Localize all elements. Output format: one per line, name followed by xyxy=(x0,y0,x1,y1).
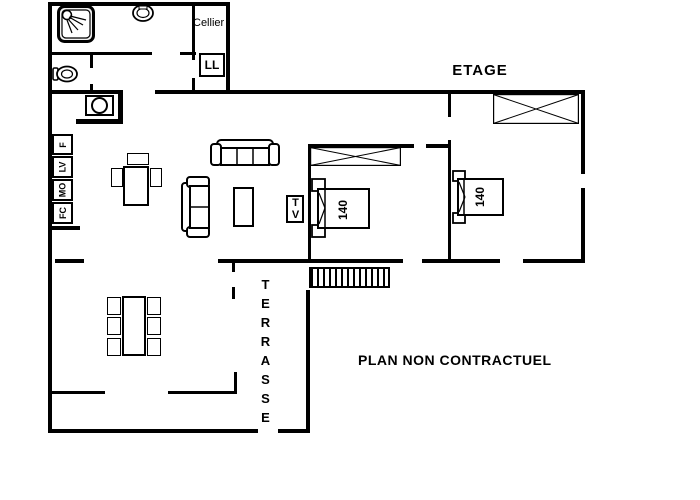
terrace-chair-right-2 xyxy=(147,317,161,335)
wall-terrace-door-b xyxy=(232,287,235,299)
wall-cellier-right xyxy=(226,2,230,92)
terrace-chair-left-3 xyxy=(107,338,121,356)
fridge-box: F xyxy=(52,134,73,155)
wall-right-outer-b xyxy=(581,188,585,263)
sofa-icon xyxy=(210,139,280,167)
tv-box: TV xyxy=(286,195,304,223)
room-label-terrasse: TERRASSE xyxy=(258,277,273,429)
wall-terrace-inner-b xyxy=(168,391,237,394)
wall-terrace-tick-vertical xyxy=(234,372,237,394)
hob-icon xyxy=(85,95,114,116)
stairs-icon xyxy=(309,267,390,288)
oven-label: FC xyxy=(58,207,68,219)
wall-main-top-a xyxy=(48,90,123,94)
wall-terrace-right xyxy=(306,290,310,432)
wall-wc-right-a xyxy=(90,52,93,68)
bed1-size-label: 140 xyxy=(323,190,363,230)
dining-table xyxy=(123,166,149,206)
hob-burner xyxy=(91,97,108,114)
washing-machine-box: LL xyxy=(199,53,225,77)
dining-chair-right xyxy=(150,168,162,187)
floor-plan: Cellier LL F LV MO FC TV xyxy=(0,0,700,500)
wardrobe-icon xyxy=(310,147,401,166)
wall-right-outer-a xyxy=(581,90,585,174)
toilet-icon xyxy=(52,64,78,84)
microwave-box: MO xyxy=(52,179,73,201)
microwave-label: MO xyxy=(58,183,68,198)
oven-box: FC xyxy=(52,202,73,224)
floor-title: ETAGE xyxy=(415,62,545,79)
terrace-chair-left-2 xyxy=(107,317,121,335)
terrace-table xyxy=(122,296,146,356)
terrace-chair-right-3 xyxy=(147,338,161,356)
wall-terrace-door-a xyxy=(232,262,235,272)
wall-bathroom-bottom-b xyxy=(180,52,196,55)
shower-icon xyxy=(57,5,95,43)
washing-machine-label: LL xyxy=(205,58,220,72)
wall-terrace-bottom-b xyxy=(278,429,310,433)
wall-bedroom2-left-a xyxy=(448,93,451,117)
wall-bedroom1-top-b xyxy=(426,144,450,148)
wall-main-bottom-a xyxy=(55,259,84,263)
dishwasher-box: LV xyxy=(52,156,73,178)
terrace-chair-left-1 xyxy=(107,297,121,315)
washbasin-icon xyxy=(132,4,154,22)
wall-appliance-base xyxy=(48,226,80,230)
terrace-chair-right-1 xyxy=(147,297,161,315)
dining-chair-left xyxy=(111,168,123,187)
loveseat-icon xyxy=(181,176,211,238)
wall-terrace-inner-a xyxy=(50,391,105,394)
tv-label: TV xyxy=(290,197,301,221)
fridge-label: F xyxy=(58,142,68,148)
wall-main-bottom-d xyxy=(523,259,585,263)
roof-window-icon xyxy=(493,94,579,124)
wall-bathroom-bottom-a xyxy=(48,52,152,55)
wall-kitchen-counter-horizontal xyxy=(76,119,123,124)
coffee-table xyxy=(233,187,254,227)
dishwasher-label: LV xyxy=(58,162,68,173)
wall-main-bottom-c xyxy=(422,259,500,263)
disclaimer-text: PLAN NON CONTRACTUEL xyxy=(358,352,552,368)
bed2-size-label: 140 xyxy=(460,177,500,217)
dining-chair-top xyxy=(127,153,149,165)
wall-bedroom2-left-b xyxy=(448,140,451,262)
wall-terrace-bottom-a xyxy=(48,429,258,433)
room-label-cellier: Cellier xyxy=(193,17,224,29)
